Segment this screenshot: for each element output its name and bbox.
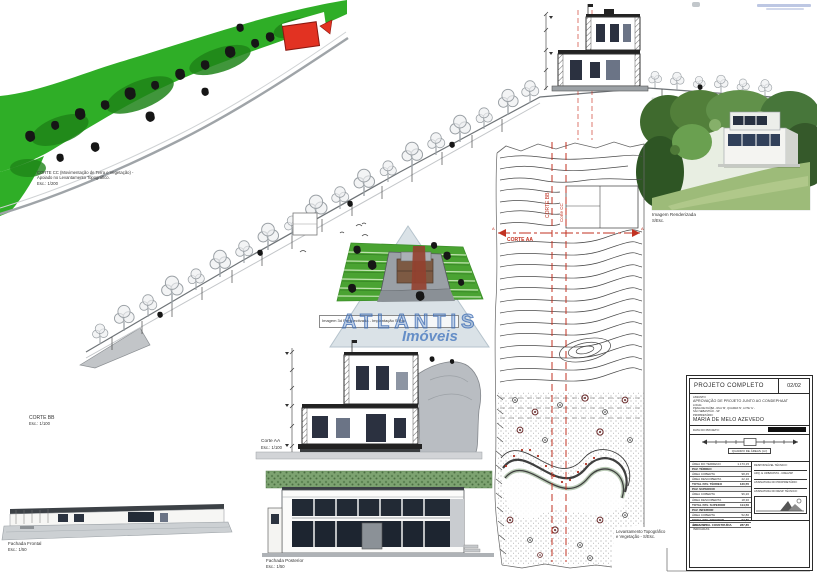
areas-header: QUADRO DE ÁREAS (m²) <box>728 448 772 454</box>
title-block-inner: PROJETO COMPLETO 02/02 ASSUNTO: APROVAÇÃ… <box>689 378 810 568</box>
signature-column: RESPONSÁVEL TÉCNICO: ARQ. E URBANISTA - … <box>752 462 809 520</box>
corte-cc-caption: CORTE CC (Movimentação de Terra e Vegeta… <box>37 170 133 186</box>
section-top-drawing <box>544 4 648 140</box>
corte-cc-caption-scale: Esc.: 1/200 <box>37 181 133 186</box>
graphic-scale-icon <box>698 437 802 447</box>
levantamento-caption-line2: e Vegetação - S/Esc. <box>616 534 665 539</box>
topographic-plan-drawing: A A CORTE BB Corte CC CORTE AA <box>492 142 644 568</box>
title-block-scalebar: QUADRO DE ÁREAS (m²) <box>690 435 809 462</box>
office-logo-box <box>754 496 807 514</box>
levantamento-caption: Levantamento Topográfico e Vegetação - S… <box>616 529 665 540</box>
escalas-value: INDICADAS <box>693 527 806 531</box>
section-arrow-label-right: A <box>641 226 644 231</box>
title-block: PROJETO COMPLETO 02/02 ASSUNTO: APROVAÇÃ… <box>686 375 813 571</box>
title-block-main: ÁREA DO TERRENO1.173,15 PAV. TÉRREO ÁREA… <box>690 462 809 521</box>
fachada-posterior-caption-scale: Esc.: 1/50 <box>266 564 304 569</box>
title-block-footer: ESCALAS: INDICADAS <box>690 521 809 567</box>
fachada-frontal-caption-scale: Esc.: 1/50 <box>8 547 41 552</box>
drawing-sheet: A A CORTE BB Corte CC CORTE AA CORTE CC … <box>0 0 817 579</box>
areas-table: ÁREA DO TERRENO1.173,15 PAV. TÉRREO ÁREA… <box>690 462 752 520</box>
plan-corte-cc-label: Corte CC <box>559 202 564 222</box>
plan-corte-aa-label: CORTE AA <box>507 237 533 243</box>
imagem-renderizada-caption-name: Imagem Renderizada <box>652 212 696 218</box>
fachada-frontal-caption-name: Fachada Frontal <box>8 541 41 547</box>
title-block-date-row: DATA DO PROJETO: <box>690 426 809 435</box>
rendered-image-drawing <box>636 90 817 210</box>
corte-aa-drawing <box>256 340 482 459</box>
corte-aa-caption: Corte AA Esc.: 1/100 <box>261 439 282 450</box>
imagem-renderizada-caption-scale: S/Esc. <box>652 218 696 223</box>
fachada-frontal-caption: Fachada Frontal Esc.: 1/50 <box>8 541 41 552</box>
proprietario-value: MARIA DE MELO AZEVEDO <box>693 417 806 423</box>
corte-bb-caption-scale: Esc.: 1/100 <box>29 421 54 426</box>
signature-line <box>754 485 807 490</box>
title-block-info: ASSUNTO: APROVAÇÃO DE PROJETO JUNTO AO C… <box>690 394 809 426</box>
title-block-header: PROJETO COMPLETO 02/02 <box>690 379 809 394</box>
fachada-posterior-caption: Fachada Posterior Esc.: 1/50 <box>266 558 304 569</box>
signature-line <box>754 467 807 472</box>
fachada-posterior-drawing <box>262 471 494 557</box>
mountain-logo-icon <box>754 497 806 513</box>
date-label: DATA DO PROJETO: <box>693 428 720 432</box>
sheet-number: 02/02 <box>779 379 809 393</box>
sig-label-4: ASSINATURA DO RESP. TÉCNICO: <box>754 490 807 493</box>
imoveis-watermark-text: Imóveis <box>402 328 458 345</box>
approval-stamp <box>768 427 806 433</box>
plan-corte-bb-label: CORTE BB <box>545 192 551 218</box>
imagem-renderizada-caption: Imagem Renderizada S/Esc. <box>652 212 696 223</box>
corte-bb-caption: CORTE BB Esc.: 1/100 <box>29 415 54 427</box>
fachada-posterior-caption-name: Fachada Posterior <box>266 558 304 564</box>
signature-line <box>754 476 807 481</box>
section-arrow-label-left: A <box>492 226 495 231</box>
project-title: PROJETO COMPLETO <box>690 379 779 393</box>
corte-aa-caption-scale: Esc.: 1/100 <box>261 445 282 450</box>
fachada-frontal-drawing <box>2 504 232 540</box>
